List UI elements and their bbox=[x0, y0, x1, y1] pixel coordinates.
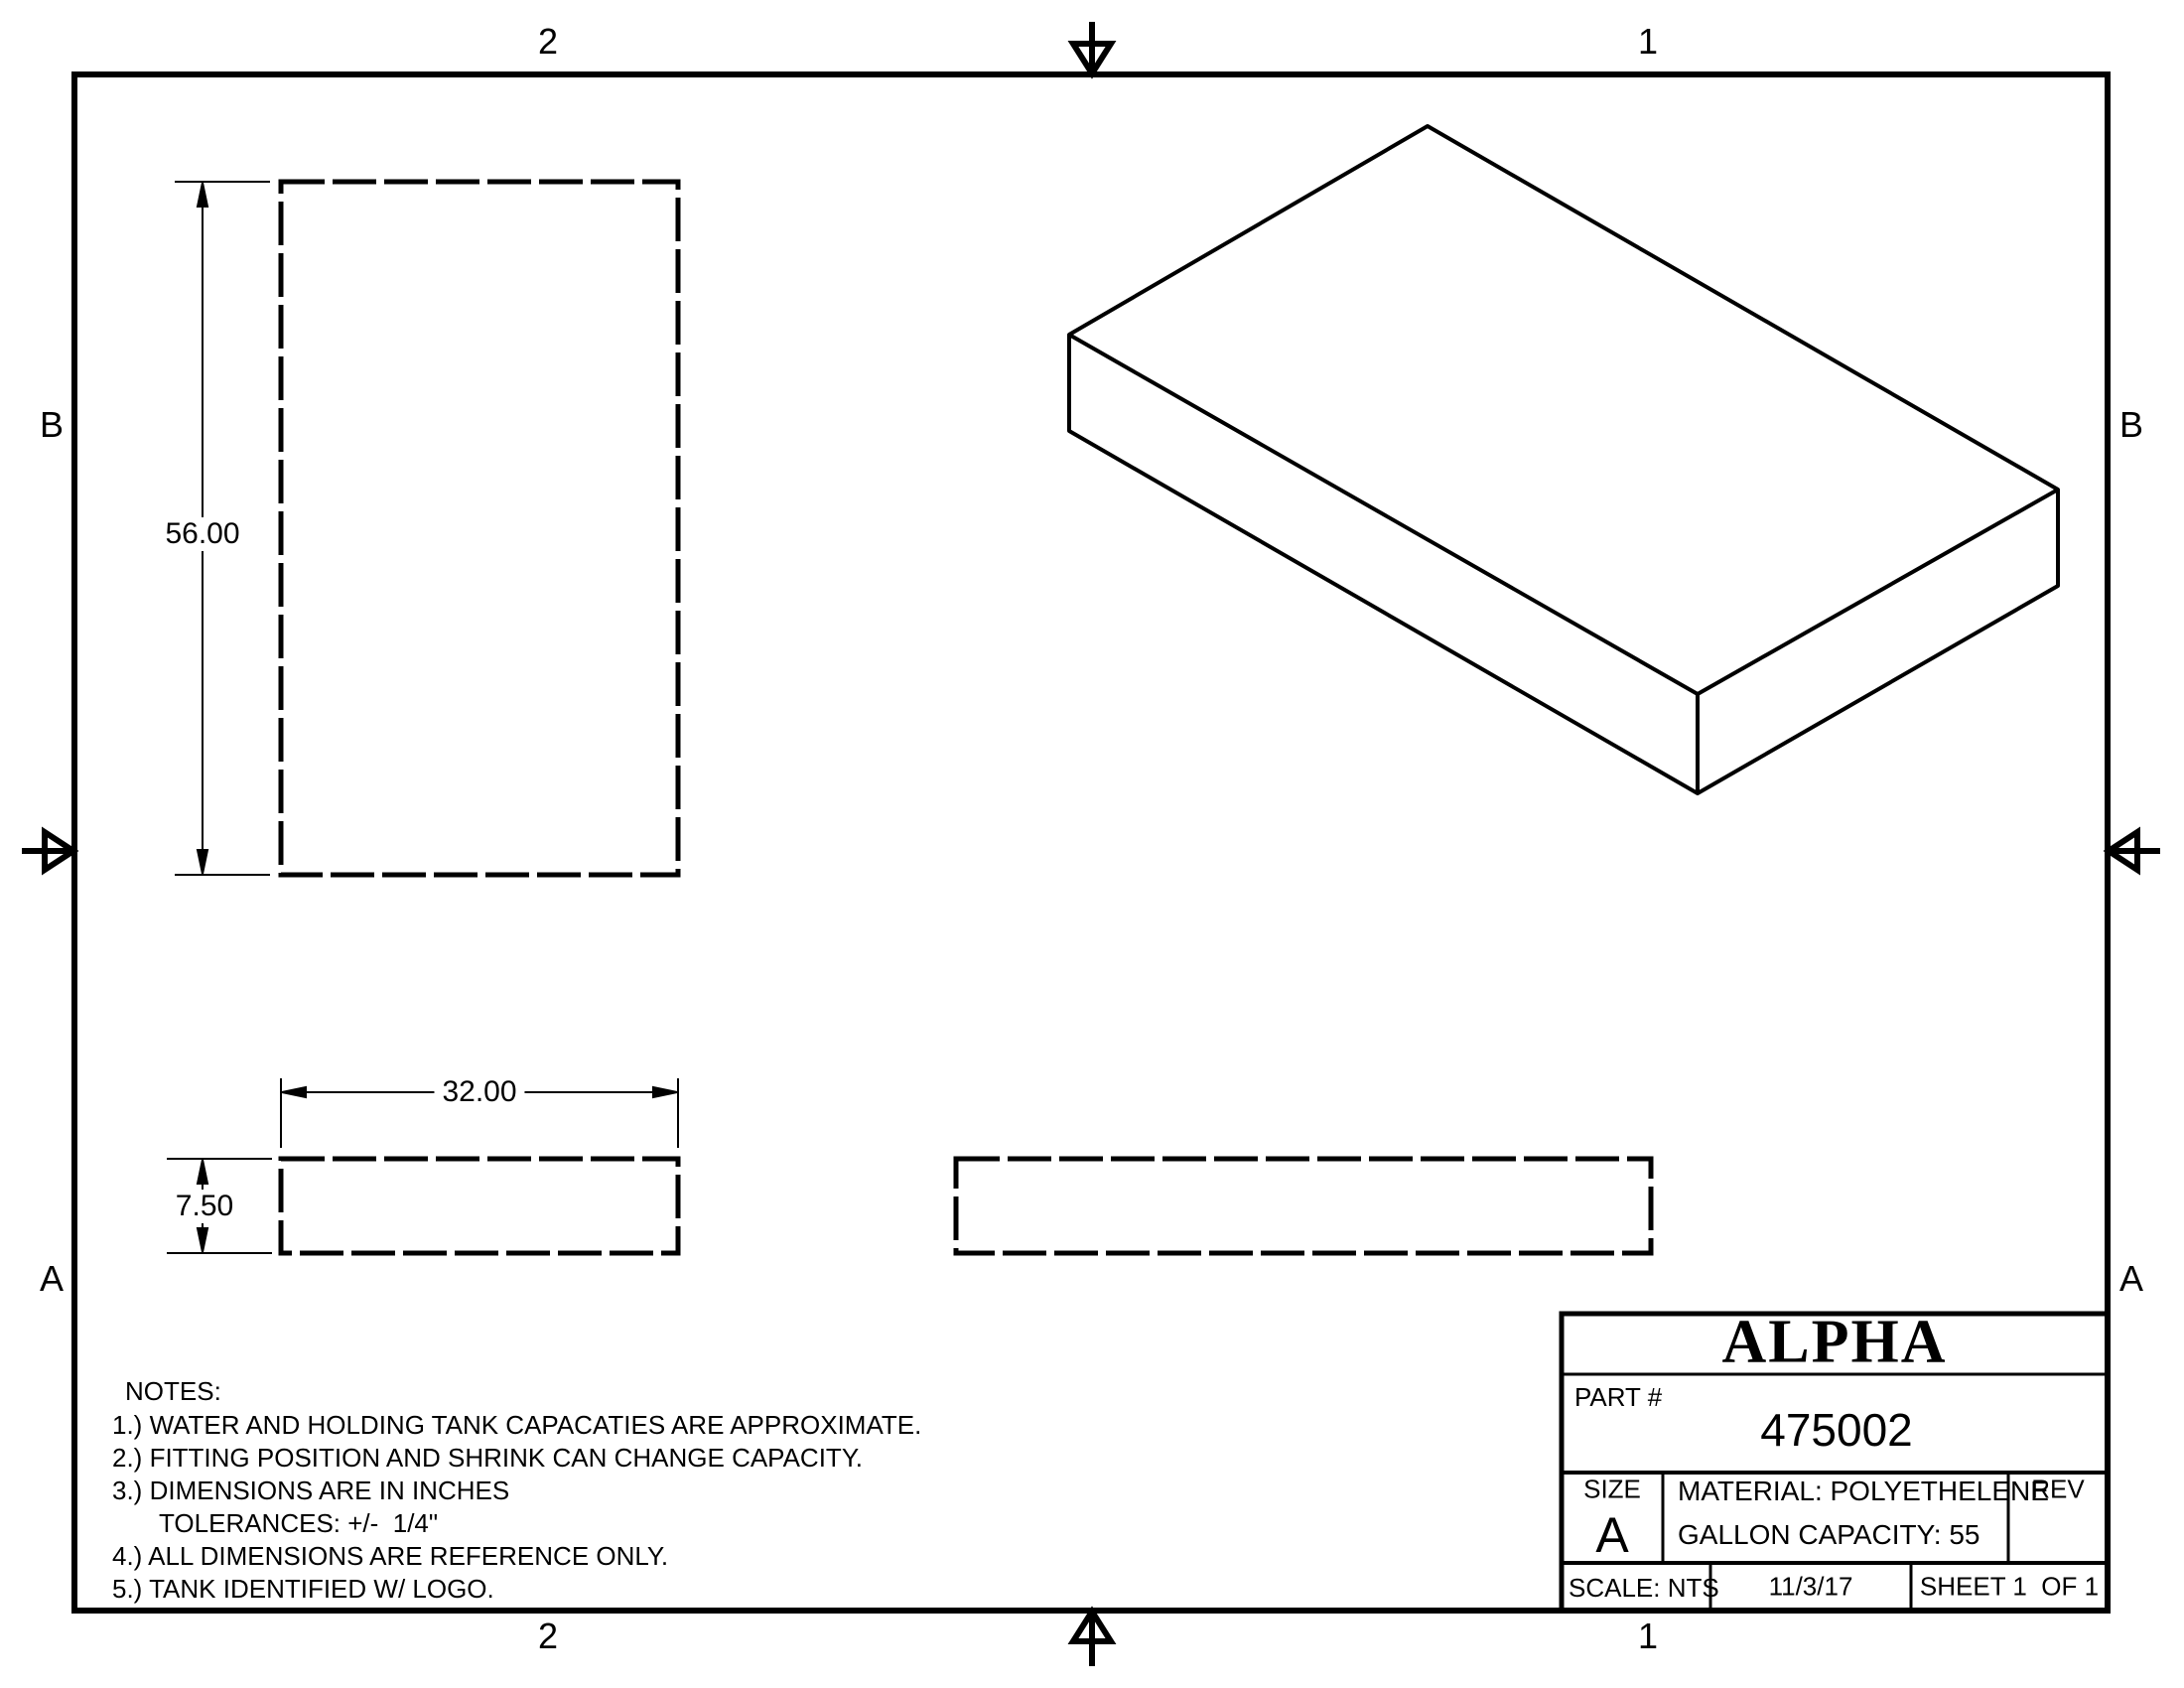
zone-label-bottom-2: 2 bbox=[538, 1616, 558, 1657]
title-block-rev-label: REV bbox=[2031, 1475, 2084, 1505]
title-block-company: ALPHA bbox=[1722, 1308, 1948, 1378]
dimension-width-value: 32.00 bbox=[434, 1075, 524, 1109]
note-item-3-tolerance: TOLERANCES: +/- 1/4" bbox=[159, 1508, 438, 1539]
zone-label-right-a: A bbox=[2119, 1258, 2143, 1300]
zone-label-top-1: 1 bbox=[1638, 21, 1658, 63]
note-item-3: 3.) DIMENSIONS ARE IN INCHES bbox=[112, 1476, 509, 1506]
zone-marker-right-icon bbox=[2109, 832, 2160, 870]
title-block-sheet: SHEET 1 OF 1 bbox=[1920, 1572, 2099, 1603]
end-view-outline bbox=[281, 1159, 678, 1253]
zone-label-right-b: B bbox=[2119, 404, 2143, 446]
dimension-height-value: 56.00 bbox=[157, 517, 247, 551]
zone-marker-left-icon bbox=[22, 832, 73, 870]
title-block-scale: SCALE: NTS bbox=[1569, 1573, 1719, 1604]
note-item-5: 5.) TANK IDENTIFIED W/ LOGO. bbox=[112, 1574, 494, 1605]
zone-label-bottom-1: 1 bbox=[1638, 1616, 1658, 1657]
zone-marker-top-icon bbox=[1073, 22, 1111, 73]
dimension-thickness-value: 7.50 bbox=[168, 1190, 241, 1223]
title-block-size-label: SIZE bbox=[1583, 1475, 1641, 1505]
drawing-sheet: 2 1 2 1 B A B A 56.00 32.00 7.50 NOTES: … bbox=[0, 0, 2184, 1688]
zone-label-left-a: A bbox=[40, 1258, 64, 1300]
side-view-outline bbox=[956, 1159, 1651, 1253]
sheet-border bbox=[74, 74, 2108, 1611]
note-item-2: 2.) FITTING POSITION AND SHRINK CAN CHAN… bbox=[112, 1443, 863, 1474]
title-block-part-number: 475002 bbox=[1760, 1403, 1913, 1457]
title-block-date: 11/3/17 bbox=[1769, 1572, 1853, 1603]
title-block-size-value: A bbox=[1595, 1506, 1628, 1564]
isometric-view bbox=[1069, 126, 2058, 793]
note-item-4: 4.) ALL DIMENSIONS ARE REFERENCE ONLY. bbox=[112, 1541, 668, 1572]
zone-marker-bottom-icon bbox=[1073, 1612, 1111, 1666]
title-block-part-label: PART # bbox=[1574, 1382, 1662, 1413]
note-item-1: 1.) WATER AND HOLDING TANK CAPACATIES AR… bbox=[112, 1410, 921, 1441]
front-view-outline bbox=[281, 182, 678, 875]
notes-title: NOTES: bbox=[125, 1376, 221, 1407]
zone-label-top-2: 2 bbox=[538, 21, 558, 63]
title-block-capacity: GALLON CAPACITY: 55 bbox=[1678, 1519, 1980, 1551]
zone-label-left-b: B bbox=[40, 404, 64, 446]
title-block-material: MATERIAL: POLYETHELENE bbox=[1678, 1476, 2049, 1507]
